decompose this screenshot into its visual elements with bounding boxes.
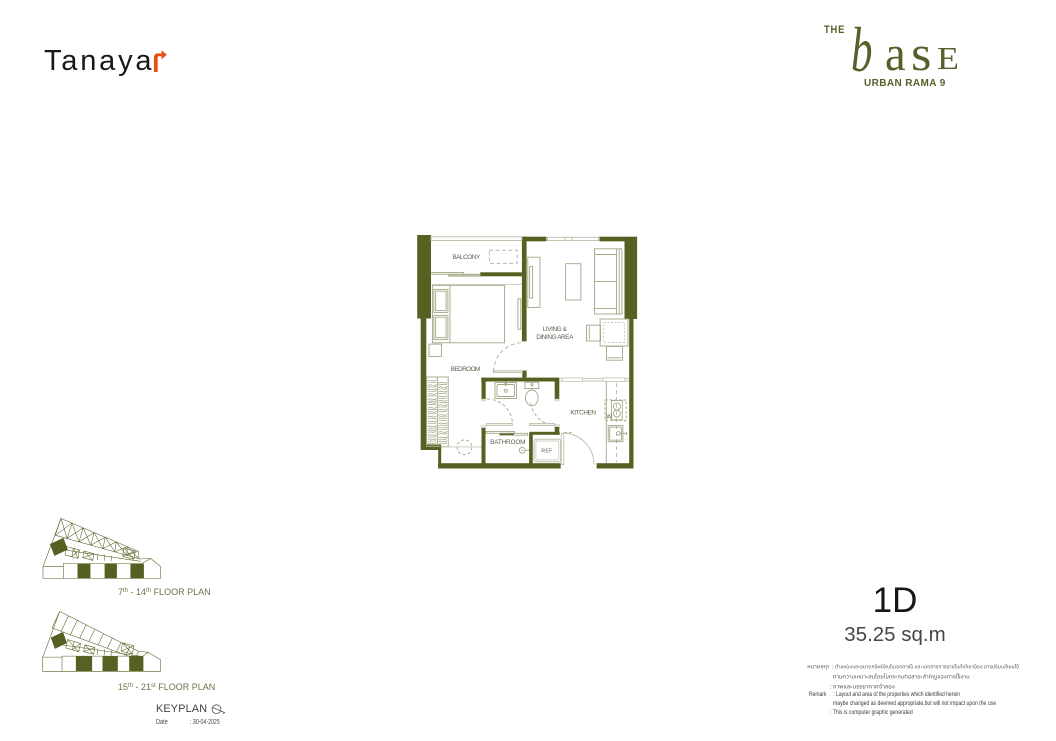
svg-text:REF: REF [541,448,552,454]
svg-text:BATHROOM: BATHROOM [490,439,525,446]
svg-text:W: W [606,414,612,421]
svg-text:BALCONY: BALCONY [452,254,481,261]
svg-text:DINING AREA: DINING AREA [536,334,574,341]
svg-text:BEDROOM: BEDROOM [451,366,481,373]
svg-text:KITCHEN: KITCHEN [570,410,596,417]
svg-text:LIVING &: LIVING & [543,326,568,333]
